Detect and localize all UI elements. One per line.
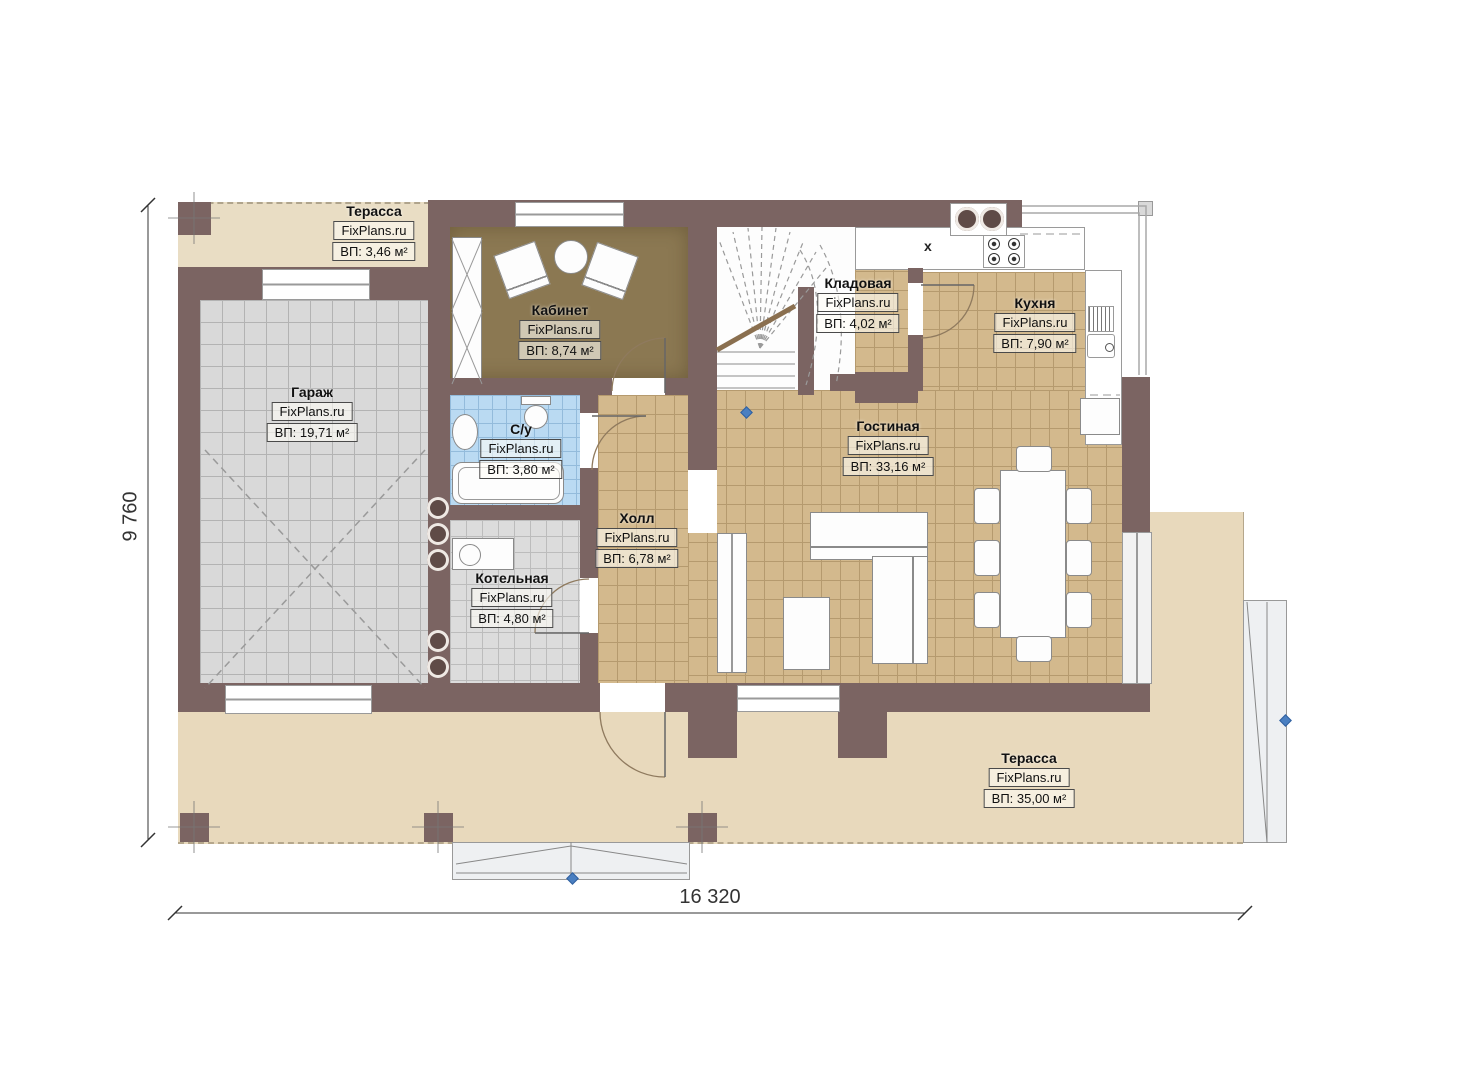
room-label-garage: Гараж FixPlans.ru ВП: 19,71 м² — [267, 384, 358, 442]
stove — [983, 235, 1025, 268]
wall-office-right — [688, 200, 717, 470]
hall-cabinet — [717, 533, 747, 673]
flue-circle-icon — [980, 207, 1004, 231]
room-area: ВП: 35,00 м² — [984, 789, 1075, 808]
room-label-office: Кабинет FixPlans.ru ВП: 8,74 м² — [518, 302, 601, 360]
terrace-pillar — [180, 813, 209, 842]
tv-stand — [1080, 398, 1120, 435]
watermark-text: FixPlans.ru — [271, 402, 352, 421]
terrace-pillar — [424, 813, 453, 842]
wall-pier-right — [838, 683, 887, 758]
room-name: С/у — [479, 421, 562, 437]
watermark-text: FixPlans.ru — [519, 320, 600, 339]
kitchen-door-opening — [908, 283, 923, 335]
wardrobe — [452, 237, 482, 385]
flue-circle-icon — [955, 207, 979, 231]
watermark-text: FixPlans.ru — [333, 221, 414, 240]
dining-chair — [1066, 592, 1092, 628]
room-label-terrace-top: Терасса FixPlans.ru ВП: 3,46 м² — [332, 203, 415, 261]
wall-bath-boiler — [450, 505, 598, 520]
room-label-bathroom: С/у FixPlans.ru ВП: 3,80 м² — [479, 421, 562, 479]
room-name: Котельная — [470, 570, 553, 586]
room-name: Холл — [595, 510, 678, 526]
sofa-section-horizontal — [810, 512, 928, 560]
room-area: ВП: 3,80 м² — [479, 460, 562, 479]
boiler-unit-icon — [427, 497, 449, 519]
garage-floor — [200, 300, 428, 683]
dining-chair — [1066, 488, 1092, 524]
room-label-terrace-bottom: Терасса FixPlans.ru ВП: 35,00 м² — [984, 750, 1075, 808]
office-window — [515, 202, 624, 227]
watermark-text: FixPlans.ru — [847, 436, 928, 455]
room-area: ВП: 4,02 м² — [816, 314, 899, 333]
room-label-hall: Холл FixPlans.ru ВП: 6,78 м² — [595, 510, 678, 568]
watermark-text: FixPlans.ru — [988, 768, 1069, 787]
kitchen-sink — [1087, 334, 1115, 358]
vent-marker: x — [924, 238, 932, 254]
wall-kitchen-stub — [855, 372, 918, 403]
wall-storage-kitchen-top — [908, 268, 923, 283]
eave-corner-square — [1138, 201, 1153, 216]
hall-living-opening — [688, 470, 717, 533]
living-sliding-door — [737, 685, 840, 712]
room-name: Гараж — [267, 384, 358, 400]
wall-terrace-corner-pillar — [178, 202, 211, 235]
wall-pier-left — [688, 683, 737, 758]
garage-window — [262, 269, 370, 300]
boiler-sink — [452, 538, 514, 570]
floor-plan: x — [0, 0, 1474, 1080]
room-area: ВП: 19,71 м² — [267, 423, 358, 442]
room-name: Терасса — [984, 750, 1075, 766]
garage-gate — [225, 685, 372, 714]
dining-chair — [1016, 446, 1052, 472]
room-label-living: Гостиная FixPlans.ru ВП: 33,16 м² — [843, 418, 934, 476]
room-name: Терасса — [332, 203, 415, 219]
dining-chair — [1016, 636, 1052, 662]
sink-drain-icon — [1105, 343, 1114, 352]
dining-chair — [974, 540, 1000, 576]
boiler-unit-icon — [427, 630, 449, 652]
entrance-door-opening — [600, 683, 665, 712]
room-area: ВП: 3,46 м² — [332, 242, 415, 261]
flue-box — [950, 203, 1007, 236]
boiler-door-opening — [580, 578, 598, 633]
dimension-height: 9 760 — [120, 482, 143, 552]
dining-chair — [1066, 540, 1092, 576]
dining-chair — [974, 592, 1000, 628]
washbasin — [452, 414, 478, 450]
watermark-text: FixPlans.ru — [596, 528, 677, 547]
room-area: ВП: 6,78 м² — [595, 549, 678, 568]
room-area: ВП: 8,74 м² — [518, 341, 601, 360]
office-round-table — [554, 240, 588, 274]
dining-chair — [974, 488, 1000, 524]
boiler-sink-bowl — [459, 544, 481, 566]
room-label-storage: Кладовая FixPlans.ru ВП: 4,02 м² — [816, 275, 899, 333]
room-area: ВП: 4,80 м² — [470, 609, 553, 628]
room-name: Кладовая — [816, 275, 899, 291]
boiler-unit-icon — [427, 549, 449, 571]
stairs-floor — [717, 227, 798, 395]
office-door-opening — [612, 378, 665, 395]
dishwasher — [1088, 306, 1114, 332]
room-area: ВП: 33,16 м² — [843, 457, 934, 476]
watermark-text: FixPlans.ru — [994, 313, 1075, 332]
coffee-table — [783, 597, 830, 670]
watermark-text: FixPlans.ru — [471, 588, 552, 607]
dining-table — [1000, 470, 1066, 638]
dimension-width: 16 320 — [660, 886, 760, 909]
watermark-text: FixPlans.ru — [480, 439, 561, 458]
room-name: Кухня — [993, 295, 1076, 311]
toilet-tank — [521, 396, 551, 405]
wall-stair-storage — [798, 287, 814, 395]
boiler-unit-icon — [427, 523, 449, 545]
burner-icon — [1008, 238, 1020, 250]
burner-icon — [1008, 253, 1020, 265]
burner-icon — [988, 238, 1000, 250]
terrace-pillar — [688, 813, 717, 842]
boiler-unit-icon — [427, 656, 449, 678]
room-name: Гостиная — [843, 418, 934, 434]
watermark-text: FixPlans.ru — [817, 293, 898, 312]
room-label-kitchen: Кухня FixPlans.ru ВП: 7,90 м² — [993, 295, 1076, 353]
terrace-right-deck — [1150, 512, 1244, 717]
sofa-section-vertical — [872, 556, 928, 664]
burner-icon — [988, 253, 1000, 265]
bathroom-door-opening — [580, 413, 598, 468]
room-label-boiler: Котельная FixPlans.ru ВП: 4,80 м² — [470, 570, 553, 628]
room-area: ВП: 7,90 м² — [993, 334, 1076, 353]
room-name: Кабинет — [518, 302, 601, 318]
living-right-window — [1122, 532, 1152, 684]
wall-left-exterior — [178, 267, 200, 712]
